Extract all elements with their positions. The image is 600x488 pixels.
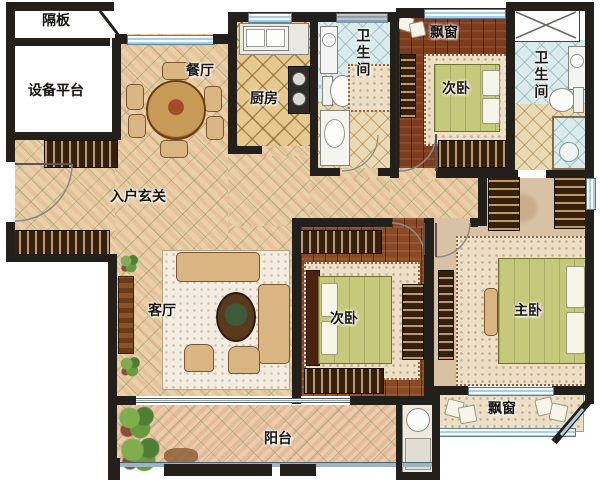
master-closet-right [554,177,588,229]
doorway-bedroom2 [392,218,424,228]
wall [228,12,237,146]
label-bath2: 卫生间 [532,50,547,136]
bay-pillow [458,405,478,425]
wall [434,386,468,395]
wall [470,218,478,227]
wall [6,254,110,262]
label-bay-window-bottom: 飘窗 [488,402,516,417]
label-bath1: 卫生间 [354,28,369,114]
armchair [184,344,214,372]
plant [120,356,142,378]
wall [350,396,434,405]
wall [228,146,262,154]
tv-console [118,276,134,354]
label-living: 客厅 [148,304,176,319]
label-kitchen: 厨房 [250,92,278,107]
doorway-bedroom1 [399,168,436,180]
wall [552,386,592,395]
stove-burner [292,72,306,86]
entry-wardrobe-top [44,140,118,168]
toilet-bowl [549,88,575,112]
wall [378,168,390,176]
bay-pillow [409,21,427,39]
floor-hall-kitchen-side [228,154,310,226]
doorway-kitchen [262,146,310,156]
wall [108,396,136,405]
nook-basin [406,408,430,432]
wall [292,218,392,227]
label-dining: 餐厅 [186,64,214,79]
bath1-wash-basin [324,119,345,148]
wall [396,400,402,472]
bay-pillow [548,402,568,422]
wall [292,218,301,404]
doorway-bath1 [340,168,378,178]
wall [280,464,316,476]
bedroom1-shelf [400,54,416,118]
bedroom1-pillow [482,70,500,96]
bedroom1-wardrobe [438,140,506,168]
master-pillow [566,312,585,354]
wall [6,38,110,46]
sliding-door [136,398,350,403]
wall [108,458,120,480]
master-dresser [438,270,454,360]
wall [310,168,340,176]
wall [310,12,318,172]
bath2-shaft [514,10,580,42]
window-bay-top [424,9,506,19]
label-equipment-platform: 设备平台 [28,84,84,99]
window [127,35,215,45]
sofa-right [258,284,290,364]
dining-chair [128,114,146,138]
toilet-tank [573,87,584,113]
plant [120,254,140,274]
wall [112,38,121,140]
wall [164,464,272,476]
doorway-master [434,218,470,228]
wall [424,218,434,404]
balcony-plant [117,406,159,440]
label-bay-window-top: 飘窗 [430,26,458,41]
bedroom2-top-wardrobe [300,230,382,254]
bedroom2-side-wardrobe [402,284,424,360]
window [586,178,596,210]
label-master: 主卧 [514,304,542,319]
wall [546,170,594,178]
wall [115,34,127,44]
label-entry-hall: 入户玄关 [110,190,166,205]
window [248,13,292,23]
shower-drain [559,142,579,162]
dining-chair [206,116,224,140]
wall [478,170,487,226]
wall [436,168,506,178]
wall [6,132,121,140]
master-bench [484,288,498,336]
label-bedroom1: 次卧 [442,82,470,97]
master-pillow [566,266,585,308]
label-balcony: 阳台 [264,432,292,447]
sink-basin [266,29,285,47]
entry-door-opening [6,162,15,222]
window [336,13,388,23]
window-bay-bottom [468,387,554,396]
sofa-top [176,252,260,282]
sink-basin [246,29,265,47]
bath1-basin [322,33,336,47]
wall [506,2,515,178]
wall [432,395,440,480]
wall [396,472,440,480]
bath2-basin [570,54,584,68]
armchair [228,346,260,374]
floor-plan: 隔板 设备平台 餐厅 厨房 卫生间 飘窗 次卧 卫生间 入户玄关 客厅 次卧 主… [0,0,600,488]
wall [108,254,117,480]
wall [6,2,114,11]
window-bay-bottom-outer [434,428,576,437]
dining-table [146,80,206,140]
bedroom2-bench [304,368,384,394]
master-closet-left [488,177,520,231]
coffee-table [216,292,256,342]
entry-wardrobe-bottom [10,230,110,256]
wall [390,12,399,178]
label-bedroom2: 次卧 [330,312,358,327]
bedroom1-pillow [482,98,500,124]
dining-chair [126,84,144,110]
bath2-vanity [568,46,586,90]
dining-chair [160,140,188,158]
dining-chair [204,86,222,112]
stove-burner [292,92,306,106]
wall [506,2,594,11]
wall [506,170,518,178]
label-partition: 隔板 [42,14,70,29]
